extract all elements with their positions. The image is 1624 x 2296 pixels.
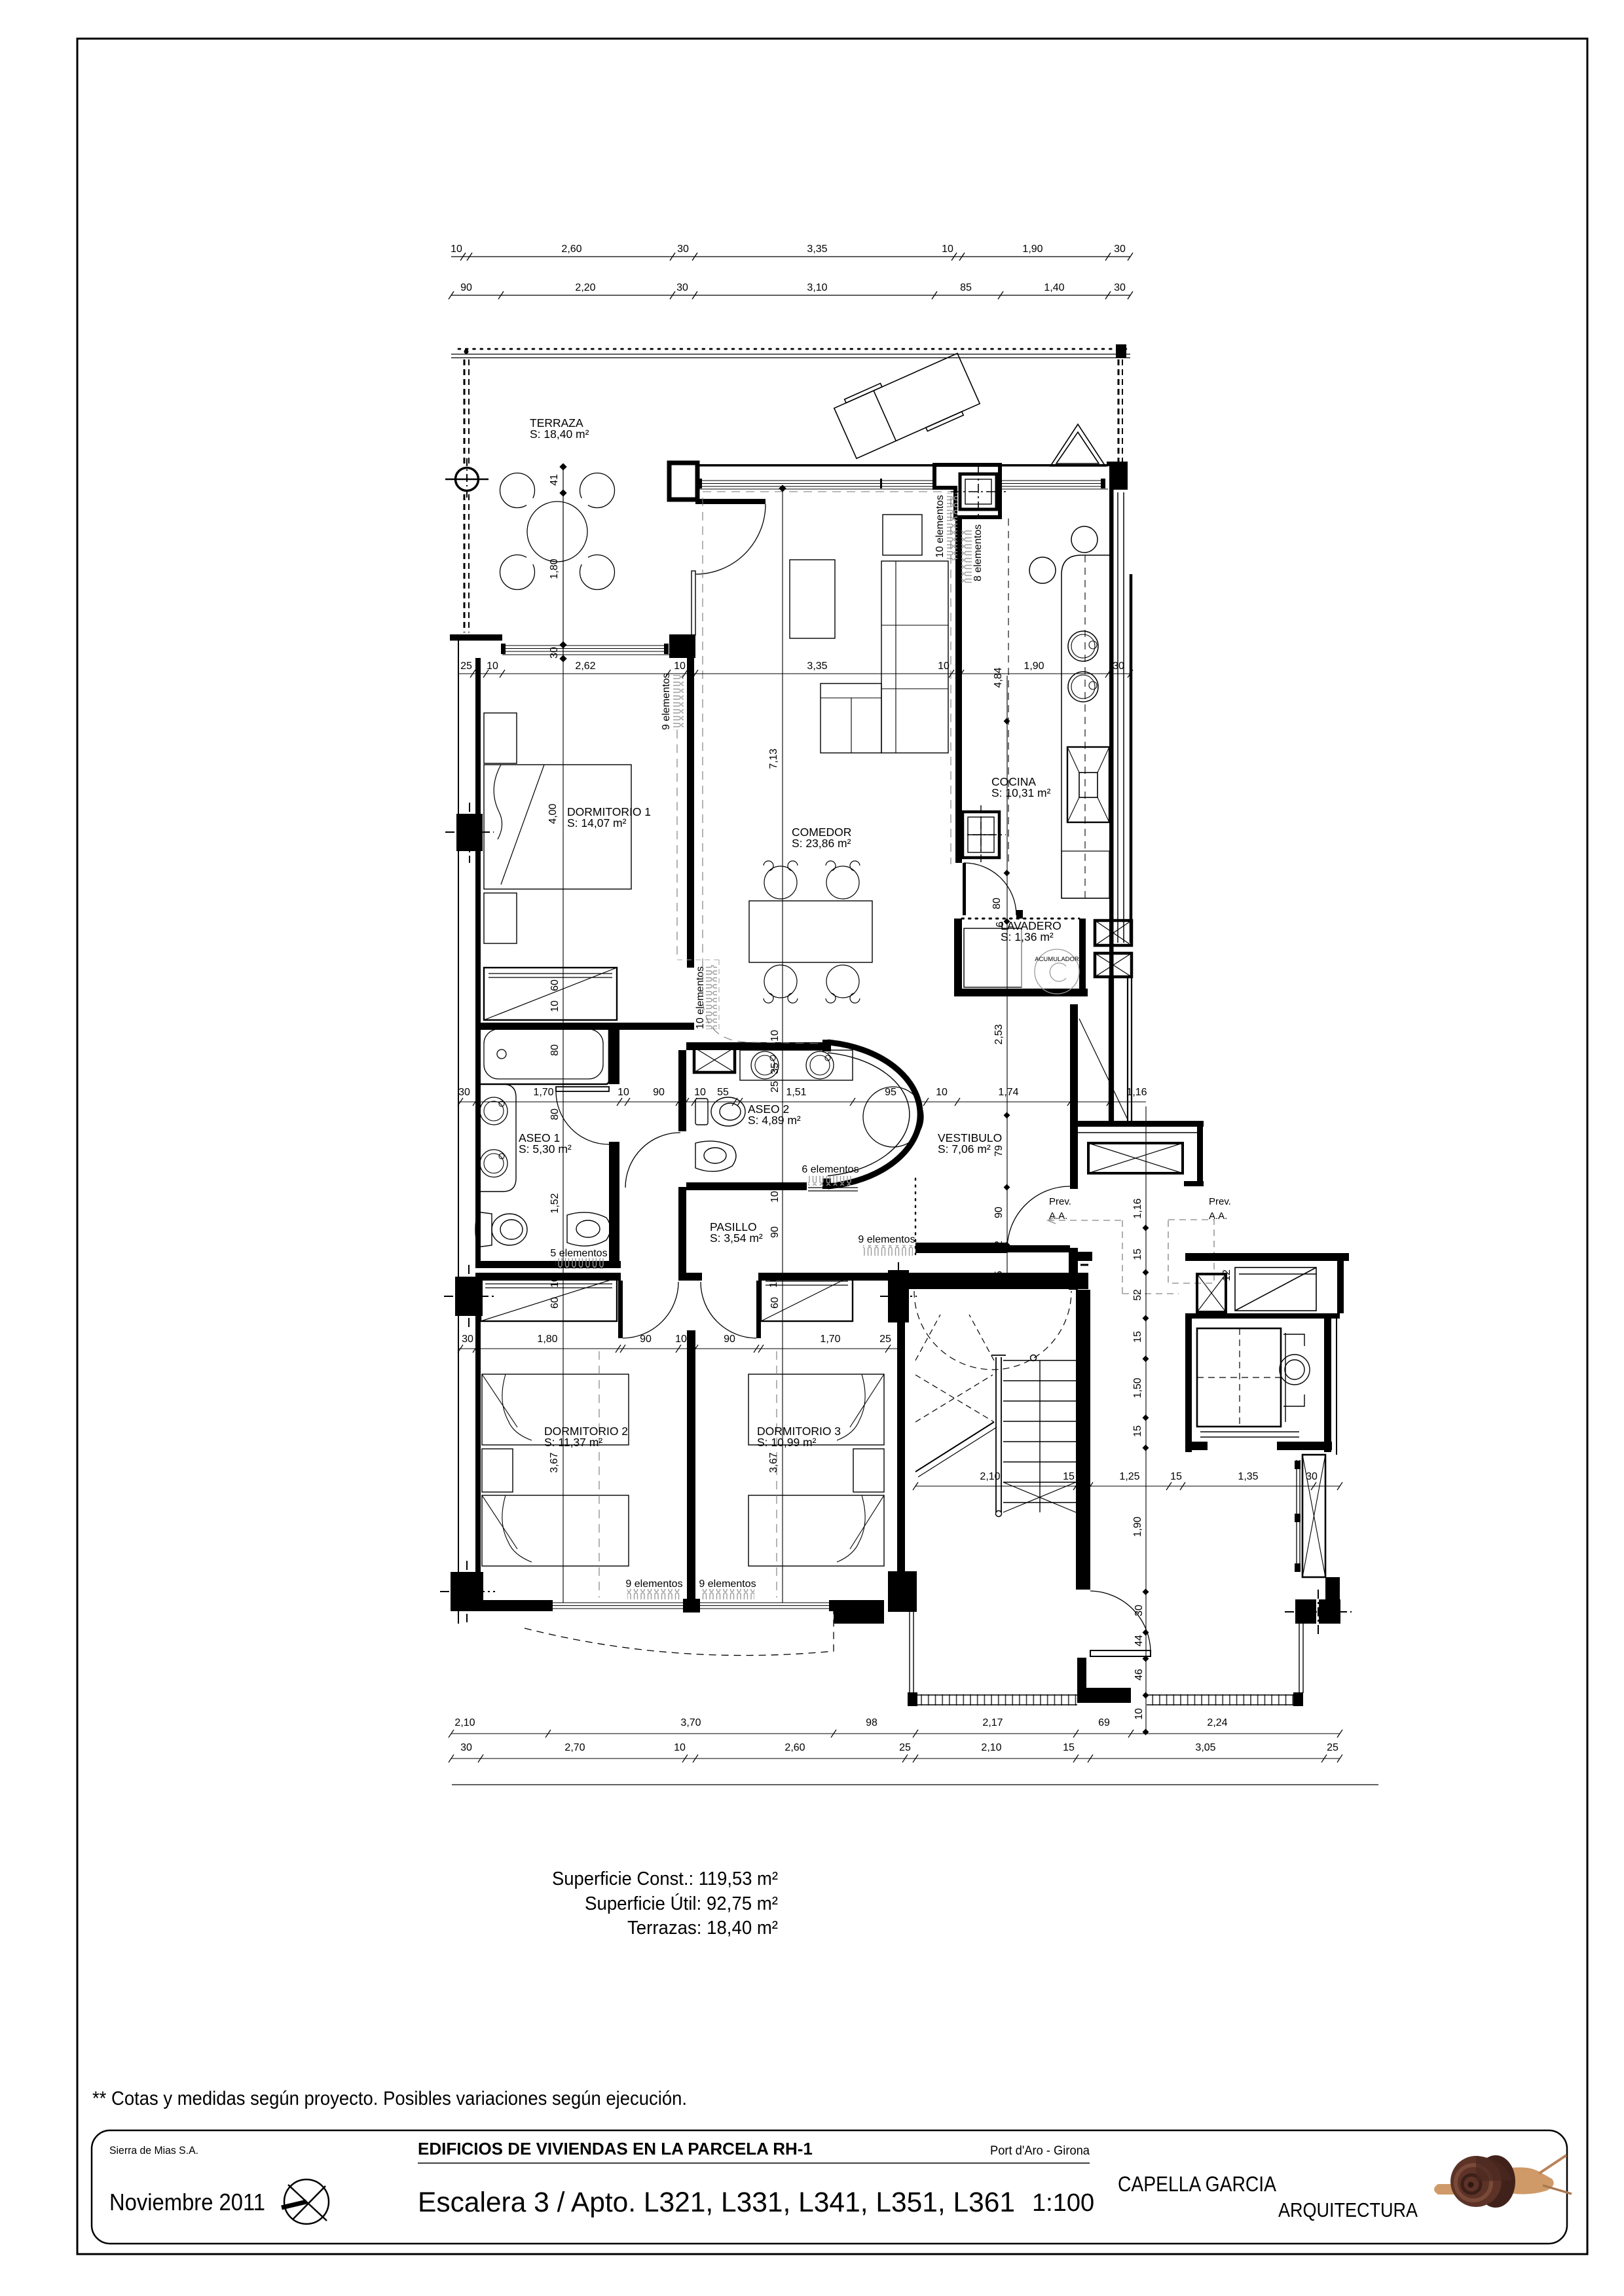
svg-text:1,80: 1,80 bbox=[537, 1334, 557, 1345]
svg-text:3,70: 3,70 bbox=[680, 1717, 701, 1728]
svg-text:2,60: 2,60 bbox=[784, 1742, 805, 1753]
svg-text:10: 10 bbox=[451, 244, 462, 255]
svg-text:Prev.: Prev. bbox=[1049, 1196, 1071, 1207]
svg-text:9 elementos: 9 elementos bbox=[858, 1234, 915, 1245]
svg-text:S: 11,37 m²: S: 11,37 m² bbox=[544, 1436, 602, 1449]
svg-text:3,10: 3,10 bbox=[807, 282, 827, 293]
svg-text:ARQUITECTURA: ARQUITECTURA bbox=[1278, 2198, 1418, 2221]
svg-text:3,05: 3,05 bbox=[1195, 1742, 1215, 1753]
svg-text:1,25: 1,25 bbox=[1119, 1471, 1139, 1482]
svg-text:60: 60 bbox=[549, 1297, 561, 1309]
svg-text:25: 25 bbox=[993, 1271, 1005, 1283]
svg-text:2,20: 2,20 bbox=[575, 282, 595, 293]
svg-text:1,70: 1,70 bbox=[820, 1334, 840, 1345]
svg-text:12: 12 bbox=[1221, 1269, 1232, 1281]
svg-text:S: 18,40 m²: S: 18,40 m² bbox=[530, 428, 589, 441]
svg-text:10: 10 bbox=[938, 661, 950, 672]
svg-text:9 elementos: 9 elementos bbox=[625, 1578, 682, 1590]
svg-text:2,24: 2,24 bbox=[1207, 1717, 1227, 1728]
svg-text:10: 10 bbox=[674, 661, 686, 672]
svg-text:90: 90 bbox=[460, 282, 472, 293]
svg-text:S: 23,86 m²: S: 23,86 m² bbox=[792, 837, 851, 850]
svg-text:41: 41 bbox=[549, 474, 560, 486]
svg-text:3,67: 3,67 bbox=[549, 1452, 560, 1472]
svg-text:30: 30 bbox=[1113, 661, 1124, 672]
svg-text:10: 10 bbox=[936, 1087, 948, 1098]
svg-text:80: 80 bbox=[549, 1108, 561, 1120]
svg-text:4,84: 4,84 bbox=[993, 667, 1004, 687]
svg-text:2,62: 2,62 bbox=[575, 661, 595, 672]
svg-text:Superficie Const.: 119,53 m²: Superficie Const.: 119,53 m² bbox=[552, 1868, 778, 1889]
svg-text:4,00: 4,00 bbox=[547, 803, 559, 824]
svg-text:25: 25 bbox=[1327, 1742, 1338, 1753]
svg-text:10: 10 bbox=[675, 1334, 687, 1345]
svg-text:30: 30 bbox=[1306, 1471, 1318, 1482]
svg-text:9 elementos: 9 elementos bbox=[661, 673, 672, 730]
svg-text:S: 14,07 m²: S: 14,07 m² bbox=[567, 816, 627, 829]
svg-text:30: 30 bbox=[1134, 1605, 1145, 1616]
svg-text:6 elementos: 6 elementos bbox=[802, 1164, 858, 1175]
svg-text:S: 7,06 m²: S: 7,06 m² bbox=[938, 1142, 991, 1156]
svg-text:A.A.: A.A. bbox=[1209, 1211, 1227, 1222]
svg-text:1,90: 1,90 bbox=[1024, 661, 1044, 672]
svg-text:10: 10 bbox=[769, 1030, 781, 1042]
svg-text:10: 10 bbox=[769, 1191, 781, 1203]
svg-text:60: 60 bbox=[549, 979, 561, 991]
svg-text:S: 4,89 m²: S: 4,89 m² bbox=[748, 1114, 801, 1127]
svg-text:1:100: 1:100 bbox=[1032, 2189, 1094, 2217]
svg-text:10: 10 bbox=[618, 1087, 629, 1098]
svg-text:Port d'Aro - Girona: Port d'Aro - Girona bbox=[990, 2144, 1090, 2158]
svg-text:2,10: 2,10 bbox=[980, 1471, 1000, 1482]
svg-text:3,35: 3,35 bbox=[807, 244, 827, 255]
svg-text:10: 10 bbox=[549, 1000, 561, 1012]
svg-text:Superficie Útil: 92,75 m²: Superficie Útil: 92,75 m² bbox=[585, 1893, 778, 1914]
svg-text:35: 35 bbox=[769, 1063, 781, 1074]
svg-text:1,90: 1,90 bbox=[1022, 244, 1043, 255]
svg-text:44: 44 bbox=[1134, 1635, 1145, 1647]
svg-text:10: 10 bbox=[942, 244, 953, 255]
svg-text:7,13: 7,13 bbox=[768, 748, 779, 769]
svg-text:8 elementos: 8 elementos bbox=[972, 524, 984, 581]
svg-text:90: 90 bbox=[724, 1334, 735, 1345]
svg-text:2,60: 2,60 bbox=[561, 244, 581, 255]
svg-text:Noviembre 2011: Noviembre 2011 bbox=[109, 2189, 265, 2215]
svg-text:10 elementos: 10 elementos bbox=[695, 966, 706, 1029]
svg-text:1,74: 1,74 bbox=[998, 1087, 1018, 1098]
svg-text:1,16: 1,16 bbox=[1126, 1087, 1147, 1098]
svg-text:1,70: 1,70 bbox=[533, 1087, 553, 1098]
svg-text:90: 90 bbox=[640, 1334, 652, 1345]
svg-text:25: 25 bbox=[879, 1334, 891, 1345]
svg-text:30: 30 bbox=[460, 1742, 472, 1753]
svg-text:2,10: 2,10 bbox=[454, 1717, 475, 1728]
svg-text:S: 1,36 m²: S: 1,36 m² bbox=[1001, 930, 1054, 943]
svg-text:CAPELLA GARCIA: CAPELLA GARCIA bbox=[1118, 2172, 1277, 2196]
svg-text:Escalera 3 / Apto. L321, L331,: Escalera 3 / Apto. L321, L331, L341, L35… bbox=[418, 2187, 1015, 2218]
svg-text:10: 10 bbox=[768, 1276, 779, 1288]
svg-text:15: 15 bbox=[1170, 1471, 1182, 1482]
svg-text:95: 95 bbox=[885, 1087, 896, 1098]
svg-text:80: 80 bbox=[549, 1044, 561, 1056]
svg-text:15: 15 bbox=[1132, 1248, 1143, 1260]
svg-text:90: 90 bbox=[653, 1087, 665, 1098]
svg-text:EDIFICIOS DE VIVIENDAS EN LA P: EDIFICIOS DE VIVIENDAS EN LA PARCELA RH-… bbox=[418, 2139, 813, 2159]
svg-text:5 elementos: 5 elementos bbox=[550, 1248, 607, 1259]
svg-text:79: 79 bbox=[993, 1145, 1005, 1157]
svg-text:15: 15 bbox=[1063, 1742, 1075, 1753]
svg-text:S: 3,54 m²: S: 3,54 m² bbox=[710, 1231, 763, 1245]
svg-text:1,52: 1,52 bbox=[549, 1193, 561, 1213]
svg-text:S: 5,30 m²: S: 5,30 m² bbox=[519, 1142, 572, 1156]
svg-text:90: 90 bbox=[993, 1207, 1005, 1218]
svg-text:10: 10 bbox=[549, 1276, 561, 1288]
svg-text:1,90: 1,90 bbox=[1132, 1516, 1143, 1537]
svg-text:1,16: 1,16 bbox=[1132, 1198, 1143, 1218]
svg-text:10: 10 bbox=[694, 1087, 706, 1098]
svg-text:S: 10,31 m²: S: 10,31 m² bbox=[991, 786, 1051, 799]
svg-text:30: 30 bbox=[1114, 244, 1126, 255]
svg-text:3,35: 3,35 bbox=[807, 661, 827, 672]
svg-text:10: 10 bbox=[674, 1742, 686, 1753]
svg-text:60: 60 bbox=[769, 1297, 781, 1309]
svg-text:10: 10 bbox=[487, 661, 498, 672]
svg-text:15: 15 bbox=[1132, 1425, 1143, 1437]
svg-text:52: 52 bbox=[1132, 1289, 1143, 1301]
svg-text:30: 30 bbox=[462, 1334, 473, 1345]
svg-text:25: 25 bbox=[899, 1742, 911, 1753]
svg-text:98: 98 bbox=[866, 1717, 877, 1728]
svg-text:25: 25 bbox=[460, 661, 472, 672]
svg-text:S: 10,99 m²: S: 10,99 m² bbox=[757, 1436, 817, 1449]
svg-text:10: 10 bbox=[1134, 1708, 1145, 1720]
svg-text:46: 46 bbox=[1134, 1669, 1145, 1681]
svg-text:85: 85 bbox=[960, 282, 972, 293]
svg-text:2,17: 2,17 bbox=[982, 1717, 1003, 1728]
svg-text:9 elementos: 9 elementos bbox=[699, 1578, 756, 1590]
svg-text:2,10: 2,10 bbox=[981, 1742, 1001, 1753]
svg-text:15: 15 bbox=[1063, 1471, 1075, 1482]
svg-text:25: 25 bbox=[769, 1081, 781, 1093]
svg-text:2,53: 2,53 bbox=[993, 1024, 1005, 1044]
svg-text:Terrazas: 18,40 m²: Terrazas: 18,40 m² bbox=[627, 1918, 778, 1939]
svg-text:ACUMULADOR: ACUMULADOR bbox=[1035, 956, 1079, 963]
svg-text:10 elementos: 10 elementos bbox=[934, 495, 946, 558]
svg-text:80: 80 bbox=[991, 898, 1003, 909]
svg-text:15: 15 bbox=[1132, 1331, 1143, 1343]
svg-text:55: 55 bbox=[717, 1087, 729, 1098]
svg-text:1,51: 1,51 bbox=[786, 1087, 806, 1098]
svg-text:30: 30 bbox=[458, 1087, 470, 1098]
svg-text:12: 12 bbox=[993, 1241, 1005, 1252]
svg-text:Sierra de Mias S.A.: Sierra de Mias S.A. bbox=[109, 2144, 198, 2157]
svg-text:3,67: 3,67 bbox=[768, 1452, 779, 1472]
svg-text:2,70: 2,70 bbox=[564, 1742, 585, 1753]
svg-text:90: 90 bbox=[769, 1226, 781, 1238]
svg-text:1,35: 1,35 bbox=[1238, 1471, 1258, 1482]
svg-text:1,50: 1,50 bbox=[1132, 1377, 1143, 1398]
svg-text:** Cotas y medidas según proye: ** Cotas y medidas según proyecto. Posib… bbox=[92, 2088, 687, 2109]
svg-text:30: 30 bbox=[1114, 282, 1126, 293]
svg-text:Prev.: Prev. bbox=[1209, 1196, 1231, 1207]
svg-text:30: 30 bbox=[677, 244, 689, 255]
svg-text:69: 69 bbox=[1098, 1717, 1110, 1728]
svg-text:1,40: 1,40 bbox=[1044, 282, 1064, 293]
svg-text:30: 30 bbox=[676, 282, 688, 293]
svg-text:1,80: 1,80 bbox=[549, 558, 560, 579]
